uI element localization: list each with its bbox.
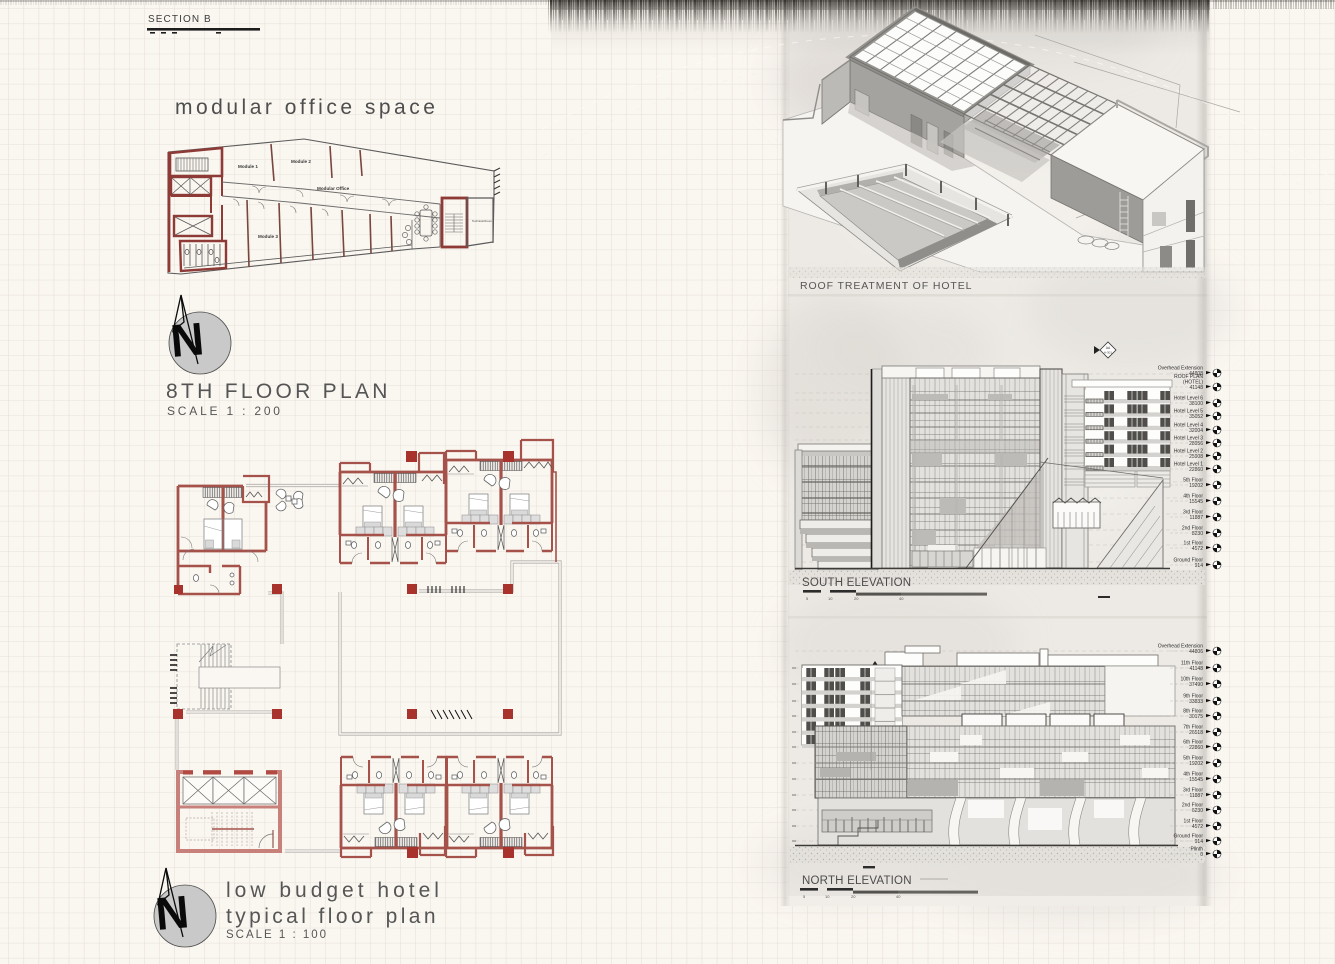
svg-text:10: 10 bbox=[825, 894, 830, 899]
svg-text:20: 20 bbox=[851, 894, 856, 899]
svg-text:26518: 26518 bbox=[1189, 730, 1203, 736]
svg-text:11887: 11887 bbox=[1189, 793, 1203, 799]
svg-text:44806: 44806 bbox=[1189, 649, 1203, 655]
svg-text:8230: 8230 bbox=[1192, 531, 1203, 537]
svg-text:41148: 41148 bbox=[1189, 385, 1203, 391]
svg-text:38100: 38100 bbox=[1189, 401, 1203, 407]
svg-text:914: 914 bbox=[1195, 839, 1204, 845]
svg-text:SOUTH ELEVATION: SOUTH ELEVATION bbox=[802, 577, 911, 589]
svg-text:19202: 19202 bbox=[1189, 761, 1203, 767]
svg-text:6230: 6230 bbox=[1192, 808, 1203, 814]
svg-text:19202: 19202 bbox=[1189, 483, 1203, 489]
svg-text:15545: 15545 bbox=[1189, 499, 1203, 505]
svg-text:low budget hotel: low budget hotel bbox=[226, 879, 443, 902]
svg-text:30175: 30175 bbox=[1189, 714, 1203, 720]
svg-text:15545: 15545 bbox=[1189, 777, 1203, 783]
svg-text:8TH FLOOR PLAN: 8TH FLOOR PLAN bbox=[166, 380, 391, 403]
svg-text:typical floor plan: typical floor plan bbox=[226, 905, 439, 928]
svg-text:40: 40 bbox=[896, 894, 901, 899]
svg-text:N: N bbox=[168, 312, 206, 367]
svg-text:modular office space: modular office space bbox=[175, 96, 438, 119]
svg-text:37490: 37490 bbox=[1189, 682, 1203, 688]
svg-text:33833: 33833 bbox=[1189, 699, 1203, 705]
svg-text:32004: 32004 bbox=[1189, 428, 1203, 434]
svg-text:11887: 11887 bbox=[1189, 515, 1203, 521]
svg-text:4572: 4572 bbox=[1192, 546, 1203, 552]
svg-text:Module 2: Module 2 bbox=[291, 159, 311, 164]
svg-text:914: 914 bbox=[1195, 563, 1204, 569]
svg-text:40: 40 bbox=[899, 596, 904, 601]
svg-text:ROOF TREATMENT OF HOTEL: ROOF TREATMENT OF HOTEL bbox=[800, 280, 972, 292]
svg-text:A-301: A-301 bbox=[1104, 351, 1112, 355]
svg-text:NORTH ELEVATION: NORTH ELEVATION bbox=[802, 875, 912, 887]
svg-text:Technical Room: Technical Room bbox=[472, 219, 493, 223]
svg-text:22860: 22860 bbox=[1189, 467, 1203, 473]
svg-text:22860: 22860 bbox=[1189, 745, 1203, 751]
svg-text:20: 20 bbox=[854, 596, 859, 601]
svg-text:AA: AA bbox=[1106, 346, 1111, 350]
svg-text:Module 1: Module 1 bbox=[238, 164, 258, 169]
svg-text:SCALE 1 : 200: SCALE 1 : 200 bbox=[167, 404, 283, 418]
svg-text:4572: 4572 bbox=[1192, 824, 1203, 830]
svg-text:41148: 41148 bbox=[1189, 666, 1203, 672]
svg-text:SECTION B: SECTION B bbox=[148, 14, 212, 25]
svg-text:35052: 35052 bbox=[1189, 414, 1203, 420]
svg-text:N: N bbox=[153, 885, 191, 940]
svg-text:Modular Office: Modular Office bbox=[317, 186, 350, 191]
svg-text:SCALE 1 : 100: SCALE 1 : 100 bbox=[226, 929, 328, 941]
svg-text:0: 0 bbox=[1200, 852, 1203, 858]
svg-text:25908: 25908 bbox=[1189, 454, 1203, 460]
svg-text:Module 3: Module 3 bbox=[258, 234, 278, 239]
svg-text:10: 10 bbox=[828, 596, 833, 601]
svg-text:28956: 28956 bbox=[1189, 441, 1203, 447]
